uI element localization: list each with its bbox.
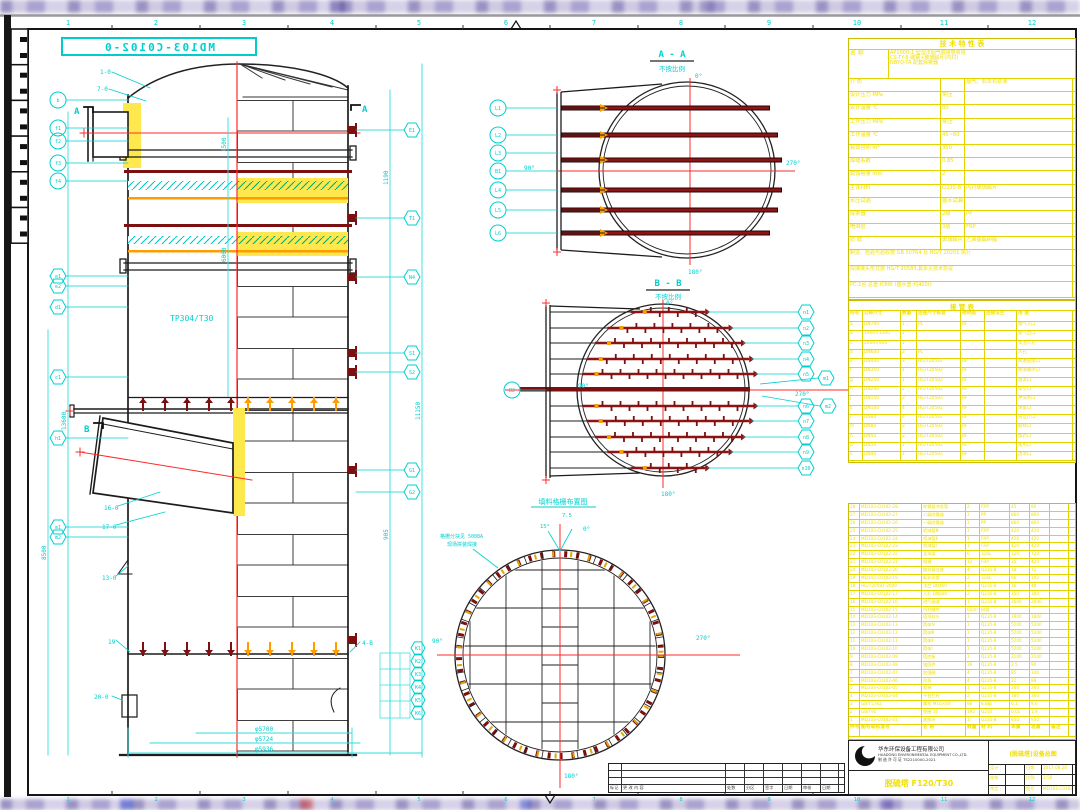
table-cell: DN150 xyxy=(863,396,901,404)
table-cell: 氧化风管 xyxy=(922,575,966,582)
spec-footer-row: 焊接接头形式按 HG/T 20583,其余见技术协议 xyxy=(849,266,1075,282)
plan-angle-15: 15° xyxy=(540,524,550,530)
table-cell: 4 xyxy=(901,406,917,414)
table-cell: 860 xyxy=(1010,512,1030,519)
table-cell xyxy=(985,341,1017,349)
table-cell: FRP xyxy=(980,536,1010,543)
balloon-tag: c1 xyxy=(55,375,61,381)
company-logo xyxy=(853,744,877,770)
company-license: 制 造 许 可 证 TS2210000-2021 xyxy=(878,757,986,763)
plan-note-1: 格栅分块见 5008A xyxy=(440,533,483,540)
table-cell: 36 xyxy=(966,662,980,669)
table-cell: MD103-C0102-11 xyxy=(860,638,922,645)
table-cell: MD103-C0102-12 xyxy=(860,630,922,637)
table-cell xyxy=(622,778,726,784)
table-cell xyxy=(1050,504,1069,511)
table-cell xyxy=(783,771,802,777)
table-cell: MD103-C0102-07 xyxy=(860,670,922,677)
table-cell: 350 xyxy=(941,145,965,157)
grid-number-bottom: 3 xyxy=(242,797,245,803)
table-cell xyxy=(1050,622,1069,629)
table-cell: HG/T20592 xyxy=(917,359,961,367)
table-cell xyxy=(1050,693,1069,700)
table-cell: 1.9 xyxy=(1030,709,1050,716)
table-cell: 340 xyxy=(1030,670,1050,677)
table-cell: e xyxy=(849,359,863,367)
bom-row: 9MD103-C0102-09塔底板1Q235-B21002100 xyxy=(849,654,1075,662)
table-cell: 二级除雾器 xyxy=(922,512,966,519)
table-cell xyxy=(985,322,1017,330)
table-cell: 10 xyxy=(849,646,860,653)
nozzle-row: hDN2002HG/T20592RF排空口 xyxy=(849,387,1075,396)
table: 标记更 改 内 容处数分区签字日期审核日期 xyxy=(608,763,845,793)
table-cell xyxy=(985,396,1017,404)
table-cell: 焊缝系数 xyxy=(849,158,941,170)
table-cell: HG/T20592-2009 xyxy=(860,583,922,590)
table-cell: 法兰 DN400 xyxy=(922,583,966,590)
table-cell: 5200 xyxy=(1030,638,1050,645)
cad-drawing-sheet: 112233445566778899101011111212 MD103-C01… xyxy=(0,0,1080,810)
table-cell: 35 xyxy=(1010,559,1030,566)
table-cell: 塔底板 xyxy=(922,654,966,661)
table-cell: Q235-B xyxy=(980,685,1010,692)
table-cell: 1 xyxy=(966,536,980,543)
table-cell xyxy=(1050,543,1069,550)
table-cell: MD103-C0102-19 xyxy=(860,575,922,582)
margin-cell xyxy=(11,100,28,136)
grid-number-bottom: 8 xyxy=(679,797,682,803)
table-cell: HG/T20592 xyxy=(917,434,961,442)
spec-row: 有效容积 m³350 xyxy=(849,145,1075,158)
table-cell: 内衬玻璃鳞片 xyxy=(965,185,1073,197)
table-cell xyxy=(821,778,839,784)
table-cell xyxy=(802,778,821,784)
table-cell: h xyxy=(849,387,863,395)
table-cell: 标记 xyxy=(609,785,622,792)
table-cell: RF xyxy=(961,378,985,386)
table: 28MD103-C0102-28除雾器冲洗管2FRP459027MD103-C0… xyxy=(848,503,1076,740)
table-cell: m xyxy=(849,424,863,432)
wall-nozzle-stub xyxy=(348,273,356,281)
table-cell: 人孔 DN600 xyxy=(922,591,966,598)
table-cell: 主体材料 xyxy=(849,185,941,197)
table-cell: 件号 xyxy=(849,725,860,736)
table-cell: 150 xyxy=(1010,591,1030,598)
table-cell: MD103-C0102-08 xyxy=(860,662,922,669)
balloon-tag: b xyxy=(56,98,59,104)
table-cell: l xyxy=(849,415,863,423)
table-cell xyxy=(965,158,1073,170)
table-cell: 图号或标准号 xyxy=(860,725,922,736)
table-cell: 8.8级 xyxy=(980,701,1010,708)
plan-note-2: 现场拼装焊接 xyxy=(447,541,477,548)
table-cell: 加强圈 xyxy=(922,670,966,677)
table-cell: 5200 xyxy=(1010,622,1030,629)
bom-row: 25MD103-C0102-25喷淋管Ⅲ1FRP420420 xyxy=(849,528,1075,536)
table-cell: 喷淋管Ⅲ xyxy=(922,528,966,535)
spec-footer-row: 制造、检验与验收按 GB 50764 及 HG/T 20201 执行 xyxy=(849,250,1075,266)
table-cell: 日期 xyxy=(1025,765,1042,774)
table-cell xyxy=(764,771,783,777)
table-cell xyxy=(745,778,764,784)
balloon-tag: L1 xyxy=(495,106,501,112)
table-cell xyxy=(985,368,1017,376)
table-cell: 22 xyxy=(1010,678,1030,685)
balloon-tag: K4 xyxy=(415,685,421,691)
table-cell: 16 xyxy=(849,599,860,606)
bom-row: 23MD103-C0102-23喷淋管Ⅰ1FRP420420 xyxy=(849,543,1075,551)
table-cell: Q235-B xyxy=(980,670,1010,677)
table-cell: 树脂 xyxy=(980,607,1010,614)
spec-row: 焊缝系数0.85 xyxy=(849,158,1075,171)
table-cell: 1:50 xyxy=(1042,775,1073,784)
table-cell: 26 xyxy=(849,520,860,527)
balloon-tag: S2 xyxy=(409,370,415,376)
table-cell: 48 xyxy=(1030,583,1050,590)
nozzle-row: jDN1502HG/T20592RF冲洗水口 xyxy=(849,396,1075,405)
table-cell xyxy=(961,350,985,358)
table-cell: 2 xyxy=(901,387,917,395)
table-cell: 4 xyxy=(966,670,980,677)
grid-number-bottom: 4 xyxy=(330,797,334,803)
aa-angle-180: 180° xyxy=(688,269,702,276)
table-cell: 喷淋管Ⅰ xyxy=(922,543,966,550)
table-cell: 2 xyxy=(901,396,917,404)
lateral-inlet xyxy=(607,435,611,439)
table-cell: 防 腐 xyxy=(849,237,941,249)
table-cell: FRP xyxy=(980,559,1010,566)
rim-tick xyxy=(577,751,578,759)
grid-number-bottom: 2 xyxy=(154,797,157,803)
balloon-tag: n5 xyxy=(803,372,809,378)
table-cell: 喷淋层 xyxy=(849,224,941,236)
bb-angle-180: 180° xyxy=(661,491,675,498)
table-cell xyxy=(802,764,821,770)
table-cell: 喷淋管Ⅱ xyxy=(922,536,966,543)
table: 接 管 表符号公称尺寸数量连接尺寸标准密封面连接法兰用 途aDN7001PLRF… xyxy=(848,300,1076,463)
table-cell: 制造、检验与验收按 GB 50764 及 HG/T 20201 执行 xyxy=(849,250,1073,265)
bom-row: 27MD103-C0102-27二级除雾器1PP860860 xyxy=(849,512,1075,520)
balloon-tag: B1 xyxy=(495,169,501,175)
shell-nozzle-stubs xyxy=(348,124,356,646)
table-cell xyxy=(985,452,1017,460)
table-cell: 排空口 xyxy=(1017,387,1073,395)
spec-row: 防 腐玻璃鳞片乙烯基酯树脂 xyxy=(849,237,1075,250)
balloon-tag: n7 xyxy=(803,419,809,425)
bb-feed-pipe xyxy=(520,387,750,392)
table-cell: 25 xyxy=(849,528,860,535)
table-cell: Q235-B xyxy=(941,185,965,197)
table-cell: 乙烯基酯树脂 xyxy=(965,237,1073,249)
table-cell: RF xyxy=(961,322,985,330)
dim-l3: 8500 xyxy=(41,545,48,560)
table-cell: 常压 xyxy=(941,119,965,131)
plan-angle-90: 90° xyxy=(432,638,443,645)
nozzle-row: pDN501HG/T20592RF备用口 xyxy=(849,443,1075,452)
table-cell xyxy=(1050,583,1069,590)
rim-tick xyxy=(461,688,469,691)
bom-row: 12MD103-C0102-12筒体Ⅲ1Q235-B52005200 xyxy=(849,630,1075,638)
table-cell: DN100 xyxy=(863,406,901,414)
table-cell: HG/T20592 xyxy=(917,368,961,376)
nozzle-row: b1900×13001烟气出口 xyxy=(849,331,1075,340)
table-cell: 搅拌器支座 xyxy=(922,567,966,574)
balloon-tag: m2 xyxy=(55,535,61,541)
table-cell: 950 xyxy=(1030,717,1050,724)
grid-number-bottom: 10 xyxy=(854,797,861,803)
table-cell: 2100 xyxy=(1010,654,1030,661)
bom-row: 20MD103-C0102-20搅拌器支座4Q235-B1872 xyxy=(849,567,1075,575)
grid-number-bottom: 9 xyxy=(767,797,770,803)
balloon-tag: n2 xyxy=(803,326,809,332)
table-cell: 常压 xyxy=(941,92,965,104)
margin-mark xyxy=(20,232,27,237)
table-cell: 2000×900 xyxy=(863,341,901,349)
table-cell: 签字 xyxy=(764,785,783,792)
table-cell: 80 xyxy=(941,105,965,117)
margin-mark xyxy=(20,180,27,185)
nozzle-row: aDN7001PLRF烟气入口 xyxy=(849,322,1075,331)
outlet-nozzle xyxy=(93,112,128,157)
table-cell: Q235-B xyxy=(980,583,1010,590)
nozzle-table-title: 接 管 表 xyxy=(849,301,1075,311)
table-cell: MD103-C0102-16 xyxy=(860,599,922,606)
table-cell: 2100 xyxy=(1030,654,1050,661)
table-cell: 单重 xyxy=(1010,725,1030,736)
table-cell: PP xyxy=(980,520,1010,527)
table-cell: 3层 xyxy=(941,224,965,236)
table-cell: MD103-C0102-24 xyxy=(860,536,922,543)
nozzle-row: c2000×9001浆池人孔 xyxy=(849,341,1075,350)
table-cell xyxy=(1050,630,1069,637)
table-cell: 1 xyxy=(901,368,917,376)
table-cell: DN400 xyxy=(863,359,901,367)
table-cell: 17 xyxy=(849,591,860,598)
demister-layer xyxy=(237,236,348,244)
table-cell: Q235-B xyxy=(980,638,1010,645)
table-cell: 12 xyxy=(849,630,860,637)
section-aa-subtitle: 不按比例 xyxy=(659,64,685,73)
bom-row: 28MD103-C0102-28除雾器冲洗管2FRP4590 xyxy=(849,504,1075,512)
balloon-tag: h1 xyxy=(55,436,61,442)
table-cell: 22 xyxy=(849,551,860,558)
table-cell xyxy=(726,764,745,770)
demister-layer xyxy=(128,181,237,190)
table-cell: GB/T5782 xyxy=(860,701,922,708)
aa-angle-270: 270° xyxy=(786,160,800,167)
table-cell: 1 xyxy=(966,622,980,629)
table-cell: b xyxy=(849,331,863,339)
stamp-text: MD103-C0102-0 xyxy=(103,41,215,54)
bom-row: 24MD103-C0102-24喷淋管Ⅱ1FRP420420 xyxy=(849,536,1075,544)
table-cell: 支承梁 xyxy=(922,551,966,558)
bb-angle-270: 270° xyxy=(795,391,809,398)
plan-title: 填料格栅布置图 xyxy=(539,497,588,506)
bom-row: 11MD103-C0102-11筒体Ⅱ1Q235-B52005200 xyxy=(849,638,1075,646)
table-cell: 人孔 xyxy=(1017,350,1073,358)
table-cell: 平台栏杆 xyxy=(922,693,966,700)
table-cell xyxy=(965,132,1073,144)
table-cell: 65m² xyxy=(966,607,980,614)
lateral-inlet xyxy=(599,357,603,361)
balloon-tag: n9 xyxy=(803,450,809,456)
table-cell: 1 xyxy=(849,717,860,724)
bom-row: 21MD103-C0102-21格栅12FRP35420 xyxy=(849,559,1075,567)
table-cell: PP xyxy=(965,211,1073,223)
balloon-tag: f1 xyxy=(55,126,61,132)
rim-tick xyxy=(593,556,596,564)
table-cell: 4 xyxy=(901,415,917,423)
table-cell: 90 xyxy=(1030,662,1050,669)
table-cell: 测量口 xyxy=(1017,406,1073,414)
plan-angle-0: 0° xyxy=(583,526,590,533)
table-cell xyxy=(985,331,1017,339)
table-cell: 860 xyxy=(1030,520,1050,527)
table-cell: 1 xyxy=(966,614,980,621)
table-cell: 3 xyxy=(966,583,980,590)
spray-nozzle-head xyxy=(183,398,191,403)
table-cell: 420 xyxy=(1030,536,1050,543)
table-cell xyxy=(965,171,1073,183)
table-cell: MD103-C0102-09 xyxy=(860,654,922,661)
table-cell: 加药口 xyxy=(1017,434,1073,442)
wall-nozzle-stub xyxy=(348,126,356,134)
aa-angle-0: 0° xyxy=(695,73,702,80)
balloon-tag: n4 xyxy=(803,357,809,363)
table-cell: 工作温度 ℃ xyxy=(849,132,941,144)
table-cell: 符号 xyxy=(849,311,863,321)
bottom-centerline-mark xyxy=(545,795,555,803)
section-mark-a-left: A xyxy=(74,107,80,117)
table-cell: 300 xyxy=(1030,591,1050,598)
grid-number-bottom: 6 xyxy=(504,797,507,803)
table-cell: 图号 xyxy=(1025,786,1042,795)
table-cell: 6 xyxy=(966,551,980,558)
balloon-tag: L3 xyxy=(495,151,501,157)
spray-nozzle-head xyxy=(139,398,147,403)
callout-19: 19 xyxy=(108,639,116,646)
table-cell: MD103-C0102-17 xyxy=(860,591,922,598)
table-cell: HG/T20592 xyxy=(917,452,961,460)
table-cell xyxy=(726,771,745,777)
table-cell: 1 xyxy=(966,654,980,661)
nozzle-row: lDN804HG/T20592RF液位计口 xyxy=(849,415,1075,424)
title-block: 华东环保设备工程有限公司 HUADONG ENVIRONMENTAL EQUIP… xyxy=(848,740,1076,795)
table-cell: HG/T20592 xyxy=(917,415,961,423)
balloon-tag: B2 xyxy=(509,388,515,394)
margin-mark xyxy=(20,73,27,78)
duct-wall-highlight xyxy=(233,408,245,516)
table-cell: c xyxy=(849,341,863,349)
table-cell: 4 xyxy=(849,693,860,700)
table-cell: 420 xyxy=(1010,528,1030,535)
table-cell: 冲洗水口 xyxy=(1017,396,1073,404)
table-cell: 13 xyxy=(849,622,860,629)
table-cell: 1 xyxy=(966,685,980,692)
section-bb-title: B - B xyxy=(654,279,682,289)
table-cell: RF xyxy=(961,434,985,442)
table-cell: 88 xyxy=(1030,678,1050,685)
title-field-row: 设计日期2017.08.28 xyxy=(989,765,1076,775)
spray-header-bar xyxy=(124,170,352,173)
table-cell: HG/T20592 xyxy=(917,406,961,414)
tower-elevation-view: A A B TP304/T30 1-0 7-0 16-0 17-0 13-0 2… xyxy=(41,62,425,757)
table-cell xyxy=(965,105,1073,117)
table-cell: 内衬鳞片 xyxy=(922,607,966,614)
spec-row: 工作温度 ℃45~60 xyxy=(849,132,1075,145)
table-cell: Q235-B xyxy=(980,646,1010,653)
dim-l1: 1500 xyxy=(221,137,228,152)
table-cell xyxy=(802,771,821,777)
table-cell: 锚固件 xyxy=(922,662,966,669)
table-cell: 950 xyxy=(1010,717,1030,724)
table-cell: MD103-C0102-26 xyxy=(860,520,922,527)
table-cell: 筒体Ⅱ xyxy=(922,638,966,645)
table-cell: 8 xyxy=(849,662,860,669)
spec-row: 主体材料Q235-B内衬玻璃鳞片 xyxy=(849,185,1075,198)
section-aa-title: A - A xyxy=(658,50,686,60)
table-cell: 吊耳 xyxy=(922,678,966,685)
nozzle-row: eDN4003HG/T20592RF喷淋层接口 xyxy=(849,359,1075,368)
balloon-tag: G1 xyxy=(409,468,415,474)
table-cell: DN200 xyxy=(863,387,901,395)
table-cell: 比例 xyxy=(1025,775,1042,784)
table-cell: 格栅 xyxy=(922,559,966,566)
lateral-inlet xyxy=(595,372,599,376)
table-cell: 2 xyxy=(901,424,917,432)
table-cell xyxy=(1050,709,1069,716)
table-cell: Q235-B xyxy=(980,678,1010,685)
table-cell: 11 xyxy=(849,638,860,645)
lateral-inlet xyxy=(607,341,611,345)
table-cell: 名 称 xyxy=(922,725,966,736)
table-cell: 公称尺寸 xyxy=(863,311,901,321)
table-cell: 260 xyxy=(1010,685,1030,692)
table-cell: MD103-C0102-13 xyxy=(860,622,922,629)
table-cell: DN700 xyxy=(863,322,901,330)
section-mark-a-right: A xyxy=(362,105,368,115)
table-cell: PC:1台 总重:约86t (盛水重:约420t) xyxy=(849,282,1073,297)
callout-7-0: 7-0 xyxy=(97,86,108,93)
table-cell: k xyxy=(849,406,863,414)
table-cell: 7 xyxy=(849,670,860,677)
table-cell xyxy=(1050,662,1069,669)
dim-d3: φ5936 xyxy=(255,746,273,753)
table-cell: 1 xyxy=(966,630,980,637)
grid-number-top: 6 xyxy=(504,19,508,27)
table-cell: 23 xyxy=(849,543,860,550)
grid-plan-view: 填料格栅布置图 0° 90° 270° 180° 15° 7.5 格栅分块见 5… xyxy=(432,497,740,788)
table-cell: 28 xyxy=(849,504,860,511)
table-cell: 3 xyxy=(901,359,917,367)
table-cell xyxy=(985,350,1017,358)
balloon-tag: e2 xyxy=(55,284,61,290)
table-cell xyxy=(961,331,985,339)
table-cell xyxy=(1050,654,1069,661)
table-cell xyxy=(1006,775,1025,784)
table-cell: DN80 xyxy=(863,424,901,432)
rim-tick xyxy=(542,751,543,759)
left-margin-table xyxy=(11,29,28,243)
table-cell: Q235-B xyxy=(980,654,1010,661)
table-cell: 日期 xyxy=(821,785,839,792)
bom-row: 17MD103-C0102-17人孔 DN6002Q235-B150300 xyxy=(849,591,1075,599)
table-cell: 2 xyxy=(941,171,965,183)
drawing-number-stamp: MD103-C0102-0 xyxy=(62,38,256,55)
rim-tick xyxy=(508,739,512,746)
section-aa-view: A - A 不按比例 0° 90° 270° 180° L1L2L3B1L4L5… xyxy=(490,50,800,276)
nozzle-row: kDN1004HG/T20592RF测量口 xyxy=(849,406,1075,415)
